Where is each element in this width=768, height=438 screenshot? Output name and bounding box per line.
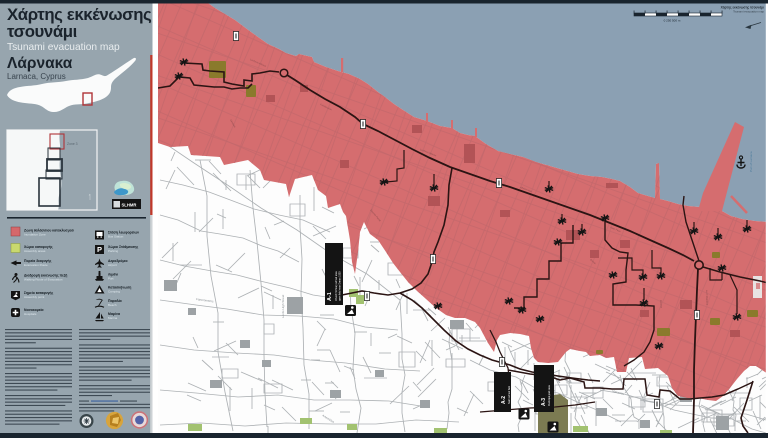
svg-text:A-2: A-2 xyxy=(501,396,507,404)
svg-text:Bus Station: Bus Station xyxy=(108,235,124,239)
svg-text:A-3: A-3 xyxy=(541,398,547,406)
svg-text:Lords High Street: Lords High Street xyxy=(281,294,285,318)
svg-text:Larnaca, Cyprus: Larnaca, Cyprus xyxy=(7,72,66,81)
svg-text:P: P xyxy=(97,245,102,254)
svg-text:Hospitals: Hospitals xyxy=(24,312,37,316)
svg-text:Assembly point: Assembly point xyxy=(24,295,45,299)
svg-text:Walking Route of Evacuation: Walking Route of Evacuation xyxy=(24,278,63,282)
svg-text:Port: Port xyxy=(108,277,114,281)
svg-text:Tsunami evacuation map: Tsunami evacuation map xyxy=(733,10,764,14)
svg-text:Inundation Zone: Inundation Zone xyxy=(24,233,46,237)
svg-text:Saint school field: Saint school field xyxy=(508,385,511,404)
svg-text:Airport: Airport xyxy=(108,263,117,267)
svg-text:Municipal park area: Municipal park area xyxy=(548,384,551,406)
svg-text:Port of Larnaca: Port of Larnaca xyxy=(749,151,753,172)
svg-text:Marina: Marina xyxy=(108,316,118,320)
svg-text:Evacuation Route: Evacuation Route xyxy=(24,263,48,267)
svg-text:0 250 500 m: 0 250 500 m xyxy=(664,19,681,23)
svg-text:Assembly areas: Assembly areas xyxy=(24,249,46,253)
svg-text:Zone 3: Zone 3 xyxy=(67,142,78,146)
svg-text:A-1: A-1 xyxy=(327,292,333,301)
svg-text:open field near Ermou 1000: open field near Ermou 1000 xyxy=(339,271,342,301)
svg-text:Parking: Parking xyxy=(108,249,119,253)
svg-text:Λάρνακα: Λάρνακα xyxy=(7,55,73,72)
svg-text:Tsunami evacuation map: Tsunami evacuation map xyxy=(7,42,120,53)
svg-text:τσουνάμι: τσουνάμι xyxy=(7,22,78,41)
svg-text:Camping: Camping xyxy=(108,290,120,294)
svg-text:Beach: Beach xyxy=(108,303,117,307)
svg-text:Leof. Makariou: Leof. Makariou xyxy=(705,290,709,306)
svg-text:SLHMR: SLHMR xyxy=(122,203,137,208)
